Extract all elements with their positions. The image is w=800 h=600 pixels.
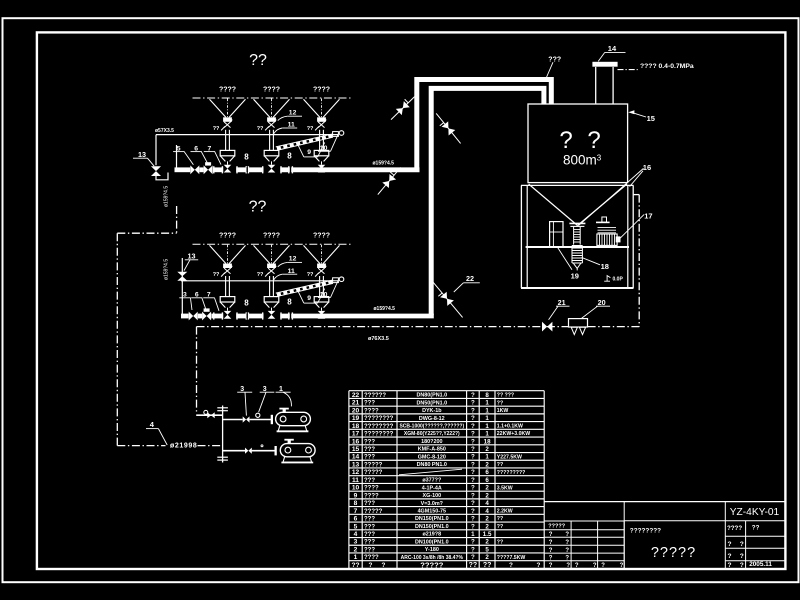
svg-text:YZ-4KY-01: YZ-4KY-01 — [730, 507, 780, 518]
svg-text:???: ??? — [364, 517, 375, 523]
svg-text:13: 13 — [138, 150, 146, 159]
svg-text:?: ? — [471, 477, 475, 484]
svg-text:????????: ???????? — [364, 432, 394, 438]
svg-text:????: ???? — [364, 493, 379, 499]
svg-text:DN80(PN1.0: DN80(PN1.0 — [417, 393, 448, 399]
svg-text:20: 20 — [598, 298, 606, 307]
svg-text:?: ? — [549, 532, 553, 538]
svg-text:8: 8 — [287, 298, 292, 307]
svg-text:?: ? — [471, 415, 475, 422]
svg-text:?: ? — [549, 563, 553, 569]
svg-text:180?200: 180?200 — [421, 439, 442, 445]
svg-text:4-1P-4A: 4-1P-4A — [422, 485, 442, 491]
svg-text:??: ?? — [469, 562, 478, 569]
svg-text:18: 18 — [352, 423, 360, 430]
svg-text:1: 1 — [485, 407, 489, 414]
svg-text:?: ? — [471, 485, 475, 492]
svg-text:6: 6 — [485, 477, 489, 484]
svg-text:?: ? — [593, 563, 597, 569]
svg-text:19: 19 — [571, 271, 579, 280]
svg-text:???: ??? — [364, 455, 375, 461]
svg-text:????: ???? — [313, 233, 330, 240]
svg-text:ø159?4.5: ø159?4.5 — [164, 259, 170, 280]
svg-text:?: ? — [559, 127, 572, 154]
svg-text:1: 1 — [485, 423, 489, 430]
svg-text:???: ??? — [364, 524, 375, 530]
svg-text:1: 1 — [471, 531, 475, 538]
svg-text:?????: ????? — [364, 462, 383, 468]
svg-text:?: ? — [728, 553, 732, 560]
svg-text:3: 3 — [354, 539, 358, 546]
svg-text:ø219?8: ø219?8 — [423, 532, 442, 538]
svg-text:21: 21 — [352, 400, 360, 407]
svg-text:????????: ???????? — [630, 527, 661, 534]
svg-text:?: ? — [566, 563, 570, 569]
svg-text:??: ?? — [307, 272, 314, 278]
svg-text:?: ? — [575, 563, 579, 569]
svg-text:14: 14 — [608, 44, 617, 53]
svg-text:?: ? — [549, 548, 553, 554]
svg-text:22KW+3.0KW: 22KW+3.0KW — [497, 431, 530, 437]
svg-text:2: 2 — [354, 546, 358, 553]
svg-text:??: ?? — [249, 52, 267, 69]
svg-text:8: 8 — [244, 299, 249, 308]
svg-text:DWG-8-12: DWG-8-12 — [419, 416, 445, 422]
svg-text:2.2KW: 2.2KW — [497, 509, 513, 515]
svg-text:DN50(PN1.0: DN50(PN1.0 — [417, 400, 448, 406]
svg-text:??: ?? — [497, 462, 503, 468]
svg-text:?: ? — [471, 392, 475, 399]
svg-text:GMC-8-120: GMC-8-120 — [418, 454, 446, 460]
svg-text:1KW: 1KW — [497, 408, 509, 414]
svg-text:??: ?? — [497, 516, 503, 522]
svg-text:?: ? — [728, 562, 732, 569]
svg-text:1: 1 — [485, 415, 489, 422]
svg-text:???: ??? — [364, 540, 375, 546]
svg-text:22: 22 — [466, 274, 474, 283]
svg-text:18: 18 — [601, 262, 609, 271]
svg-text:7: 7 — [354, 508, 358, 515]
svg-text:????: ???? — [364, 486, 379, 492]
svg-text:?: ? — [471, 469, 475, 476]
svg-text:????: ???? — [313, 86, 330, 93]
svg-text:??: ?? — [752, 525, 760, 532]
svg-text:DN150(PN1.0: DN150(PN1.0 — [415, 524, 449, 530]
svg-text:?: ? — [471, 454, 475, 461]
svg-text:?: ? — [471, 554, 475, 561]
svg-text:?: ? — [587, 127, 600, 154]
svg-text:????: ???? — [727, 525, 742, 532]
svg-text:16: 16 — [352, 438, 360, 445]
svg-text:?: ? — [537, 562, 541, 569]
svg-text:?: ? — [565, 540, 569, 546]
svg-text:??: ?? — [497, 400, 503, 406]
svg-text:V=3.0m?: V=3.0m? — [421, 501, 443, 507]
svg-text:16: 16 — [643, 163, 651, 172]
svg-text:?: ? — [728, 541, 732, 548]
svg-text:??: ?? — [249, 199, 267, 216]
svg-text:8: 8 — [287, 151, 292, 160]
svg-text:??: ?? — [351, 562, 359, 569]
svg-text:2: 2 — [485, 539, 489, 546]
svg-text:4: 4 — [485, 508, 489, 515]
svg-text:?: ? — [471, 423, 475, 430]
svg-text:????: ???? — [364, 555, 379, 561]
svg-text:????: ???? — [263, 86, 280, 93]
svg-text:?: ? — [471, 446, 475, 453]
svg-text:17: 17 — [352, 431, 360, 438]
svg-text:?: ? — [471, 500, 475, 507]
svg-text:6: 6 — [485, 469, 489, 476]
svg-text:Y-180: Y-180 — [425, 547, 439, 553]
svg-text:?????????: ????????? — [497, 470, 526, 476]
svg-text:?: ? — [471, 539, 475, 546]
svg-text:?: ? — [471, 516, 475, 523]
svg-text:12: 12 — [352, 469, 360, 476]
svg-text:DN150(PN1.0: DN150(PN1.0 — [415, 516, 449, 522]
svg-text:DN100(PN1.0: DN100(PN1.0 — [415, 539, 449, 545]
svg-text:10: 10 — [352, 485, 360, 492]
svg-text:???: ??? — [364, 532, 375, 538]
svg-text:2: 2 — [485, 492, 489, 499]
svg-text:17: 17 — [644, 211, 652, 220]
svg-text:?: ? — [471, 407, 475, 414]
svg-text:11: 11 — [352, 477, 359, 484]
svg-text:1: 1 — [485, 454, 489, 461]
svg-text:?: ? — [471, 438, 475, 445]
svg-text:????: ???? — [364, 408, 379, 414]
svg-text:1: 1 — [485, 400, 489, 407]
svg-text:15: 15 — [352, 446, 360, 453]
svg-text:14: 14 — [352, 454, 360, 461]
svg-text:19: 19 — [352, 415, 360, 422]
svg-text:?: ? — [382, 562, 386, 569]
svg-text:?: ? — [471, 400, 475, 407]
svg-text:15: 15 — [647, 114, 655, 123]
svg-text:??: ?? — [213, 126, 220, 132]
svg-text:SCB-1000(??????,??????): SCB-1000(??????,??????) — [399, 424, 464, 430]
svg-text:?: ? — [565, 555, 569, 561]
svg-text:2: 2 — [485, 485, 489, 492]
svg-text:1: 1 — [354, 554, 358, 561]
svg-text:ø159?4.5: ø159?4.5 — [374, 306, 396, 312]
svg-text:?? ???: ?? ??? — [497, 393, 514, 399]
svg-text:DYK-1b: DYK-1b — [422, 408, 442, 414]
svg-text:????: ???? — [219, 86, 236, 93]
svg-text:1: 1 — [485, 431, 489, 438]
svg-text:?????: ????? — [364, 509, 383, 515]
svg-text:??: ?? — [483, 562, 492, 569]
svg-text:20: 20 — [352, 407, 360, 414]
svg-text:??: ?? — [213, 272, 220, 278]
svg-text:?: ? — [471, 461, 475, 468]
svg-text:????: ???? — [263, 233, 280, 240]
svg-text:5: 5 — [354, 523, 358, 530]
svg-text:?: ? — [601, 563, 605, 569]
svg-text:12: 12 — [289, 109, 297, 116]
svg-text:XG-100: XG-100 — [423, 493, 442, 499]
svg-text:?????: ????? — [420, 560, 444, 569]
svg-text:9: 9 — [307, 295, 311, 302]
svg-text:??: ?? — [307, 126, 314, 132]
svg-text:???: ??? — [364, 401, 375, 407]
svg-text:?: ? — [471, 523, 475, 530]
svg-text:ø21998: ø21998 — [170, 443, 197, 450]
svg-text:?: ? — [471, 546, 475, 553]
svg-text:22: 22 — [352, 392, 360, 399]
svg-text:?: ? — [740, 562, 744, 569]
svg-text:???: ??? — [364, 447, 375, 453]
svg-text:4: 4 — [354, 531, 358, 538]
svg-text:???: ??? — [364, 547, 375, 553]
svg-text:DN80 PN1.0: DN80 PN1.0 — [417, 462, 447, 468]
svg-text:?: ? — [740, 541, 744, 548]
svg-text:??????: ?????? — [364, 393, 386, 399]
svg-text:13: 13 — [352, 461, 360, 468]
svg-text:800m3: 800m3 — [563, 153, 602, 168]
svg-text:6: 6 — [354, 516, 358, 523]
svg-text:?: ? — [549, 555, 553, 561]
svg-text:8: 8 — [485, 392, 489, 399]
svg-text:???? 0.4-0.7MPa: ???? 0.4-0.7MPa — [640, 63, 694, 70]
svg-text:??: ?? — [497, 539, 503, 545]
svg-text:ø377??: ø377?? — [422, 478, 441, 484]
svg-text:?: ? — [620, 563, 624, 569]
svg-text:8: 8 — [354, 500, 358, 507]
svg-text:?: ? — [471, 492, 475, 499]
svg-text:?????: ????? — [364, 470, 383, 476]
svg-text:0.0P: 0.0P — [613, 276, 624, 282]
svg-text:9: 9 — [354, 492, 358, 499]
svg-text:???: ??? — [364, 501, 375, 507]
svg-text:3.5KW: 3.5KW — [497, 485, 513, 491]
svg-text:?: ? — [565, 532, 569, 538]
svg-text:???: ??? — [364, 439, 375, 445]
svg-text:??: ?? — [257, 272, 264, 278]
svg-text:2: 2 — [485, 523, 489, 530]
svg-text:????????: ???????? — [364, 416, 394, 422]
svg-text:?: ? — [549, 540, 553, 546]
svg-text:18: 18 — [484, 438, 491, 445]
svg-text:2005.11: 2005.11 — [749, 561, 772, 568]
svg-text:?: ? — [740, 553, 744, 560]
svg-text:9: 9 — [307, 149, 311, 156]
svg-text:4GM150-75: 4GM150-75 — [418, 509, 446, 515]
svg-text:?????: ????? — [548, 523, 565, 529]
svg-text:???: ??? — [548, 57, 561, 64]
svg-text:2: 2 — [485, 446, 489, 453]
svg-text:?: ? — [369, 562, 373, 569]
svg-text:?????: ????? — [651, 545, 696, 561]
svg-text:12: 12 — [289, 256, 297, 263]
svg-text:????: ???? — [219, 233, 236, 240]
svg-text:XGM-80(Y225??,Y222?): XGM-80(Y225??,Y222?) — [404, 431, 460, 437]
svg-text:4: 4 — [485, 500, 489, 507]
svg-text:1.1+0.1KW: 1.1+0.1KW — [497, 424, 523, 430]
svg-text:5: 5 — [485, 546, 489, 553]
svg-text:??: ?? — [257, 126, 264, 132]
svg-text:ø159?4.5: ø159?4.5 — [164, 186, 170, 207]
svg-text:ø57X3.5: ø57X3.5 — [155, 128, 174, 134]
svg-text:2: 2 — [485, 461, 489, 468]
svg-text:2: 2 — [485, 516, 489, 523]
svg-text:ø76X3.5: ø76X3.5 — [368, 336, 389, 342]
svg-text:?: ? — [471, 508, 475, 515]
svg-text:Y227.5KW: Y227.5KW — [497, 454, 522, 460]
svg-text:13: 13 — [188, 252, 196, 261]
svg-text:ø159?4.5: ø159?4.5 — [373, 161, 395, 167]
svg-text:8: 8 — [244, 152, 249, 161]
svg-text:????7.5KW: ????7.5KW — [497, 555, 526, 561]
svg-text:??: ?? — [497, 524, 503, 530]
svg-text:1.5: 1.5 — [483, 531, 492, 538]
svg-text:????????: ???????? — [364, 424, 394, 430]
svg-text:?: ? — [471, 431, 475, 438]
svg-text:KMF-A-850: KMF-A-850 — [418, 447, 446, 453]
svg-text:?: ? — [565, 548, 569, 554]
svg-text:21: 21 — [558, 298, 566, 307]
svg-text:2: 2 — [485, 554, 489, 561]
svg-text:?: ? — [509, 562, 513, 569]
svg-text:???: ??? — [364, 478, 375, 484]
